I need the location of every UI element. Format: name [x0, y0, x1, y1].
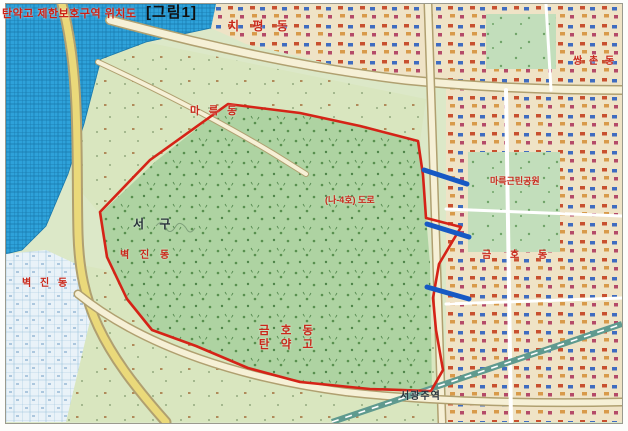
label-mareuk-dong: 마 륵 동 — [190, 106, 240, 118]
label-geumho-dong: 금 호 동 — [482, 250, 555, 261]
title-row: 탄약고 제한보호구역 위치도 [그림1] — [2, 1, 197, 22]
figure-label: [그림1] — [146, 4, 197, 21]
label-byeokjin-dong: 벽 진 동 — [120, 250, 173, 261]
label-ssangchon-dong: 쌍 촌 동 — [573, 56, 616, 67]
label-depot-line1: 금 호 동 — [242, 324, 334, 338]
label-seo-gu: 서 구 — [133, 218, 176, 231]
map-canvas: 치 평 동 쌍 촌 동 마 륵 동 벽 진 동 서 구 벽 진 동 (나-4호)… — [6, 4, 622, 423]
label-seogwangju-station: 서광주역 — [400, 391, 441, 402]
park-area-north — [486, 14, 556, 69]
label-depot: 금 호 동 탄 약 고 — [242, 324, 334, 352]
label-chipyeong-dong: 치 평 동 — [228, 20, 293, 33]
map-title: 탄약고 제한보호구역 위치도 — [2, 8, 137, 20]
label-byeokjin-dong-west: 벽 진 동 — [22, 278, 70, 289]
label-road-na4: (나-4호) 도로 — [325, 196, 375, 206]
scanned-map-page: 치 평 동 쌍 촌 동 마 륵 동 벽 진 동 서 구 벽 진 동 (나-4호)… — [0, 0, 628, 431]
label-depot-line2: 탄 약 고 — [242, 338, 334, 352]
label-mareuk-park: 마륵근린공원 — [490, 177, 540, 187]
park-area — [468, 152, 560, 252]
map-terrain — [6, 4, 622, 423]
